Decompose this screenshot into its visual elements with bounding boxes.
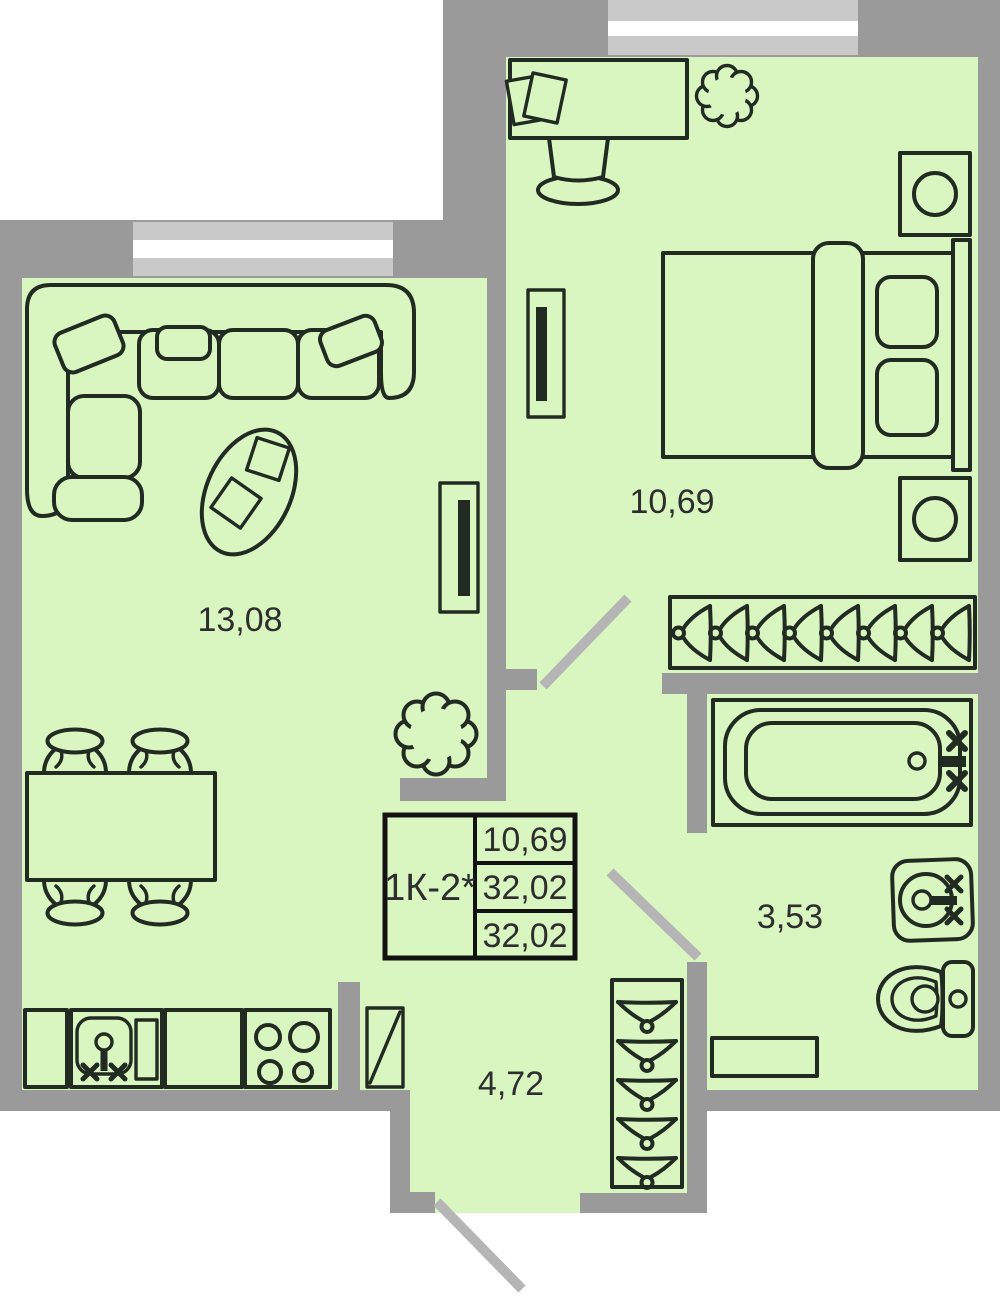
- floor-plan-canvas: 13,08 10,69 3,53 4,72 1К-2* 10,69 32,02 …: [0, 0, 1000, 1296]
- kitchen-cabinet: [25, 1010, 67, 1087]
- bathtub-faucet: [938, 756, 966, 767]
- door-leaf-kitchen: [367, 1008, 403, 1087]
- sofa-pillow: [157, 327, 210, 359]
- wardrobe-hangers: [670, 597, 975, 668]
- info-value-2: 32,02: [482, 869, 567, 907]
- dining-chair: [44, 730, 106, 774]
- radiator-bedroom: [528, 290, 564, 417]
- unit-type-label: 1К-2*: [384, 867, 476, 909]
- desk: [506, 60, 687, 138]
- bed-runner: [813, 243, 863, 468]
- plant-living: [396, 694, 477, 775]
- headboard: [953, 240, 970, 470]
- door-swing-entrance: [437, 1202, 522, 1289]
- window-bedroom: [608, 0, 858, 55]
- dining-chair: [129, 880, 191, 925]
- radiator-living: [440, 483, 478, 612]
- toilet: [878, 962, 973, 1036]
- bed-pillow: [877, 360, 937, 435]
- bed-pillow: [877, 277, 937, 347]
- window-living: [133, 222, 393, 276]
- area-label-hallway: 4,72: [478, 1065, 544, 1103]
- plant-bedroom: [697, 66, 758, 127]
- toilet-tank: [943, 962, 973, 1036]
- bath-shelf: [712, 1038, 817, 1076]
- floor-plan: 13,08 10,69 3,53 4,72 1К-2* 10,69 32,02 …: [0, 0, 1000, 1296]
- kitchen-cabinet: [165, 1010, 242, 1087]
- dining-chair: [44, 880, 106, 925]
- kitchen-sink: [77, 1018, 157, 1079]
- nightstand-bottom: [900, 478, 970, 560]
- bed: [663, 240, 970, 470]
- kitchen-counter: [25, 1010, 330, 1087]
- area-label-living: 13,08: [197, 601, 282, 639]
- nightstand-top: [900, 153, 970, 235]
- dining-table: [27, 773, 215, 880]
- dining-chair: [129, 730, 191, 774]
- area-label-bedroom: 10,69: [629, 483, 714, 521]
- washbasin: [892, 859, 974, 942]
- bathtub: [713, 700, 971, 825]
- info-table: 1К-2* 10,69 32,02 32,02: [384, 815, 575, 958]
- area-label-bathroom: 3,53: [757, 898, 823, 936]
- info-value-3: 32,02: [482, 917, 567, 955]
- papers: [524, 73, 566, 123]
- basin-faucet: [931, 896, 957, 905]
- info-value-1: 10,69: [482, 821, 567, 859]
- coat-rack: [612, 980, 682, 1188]
